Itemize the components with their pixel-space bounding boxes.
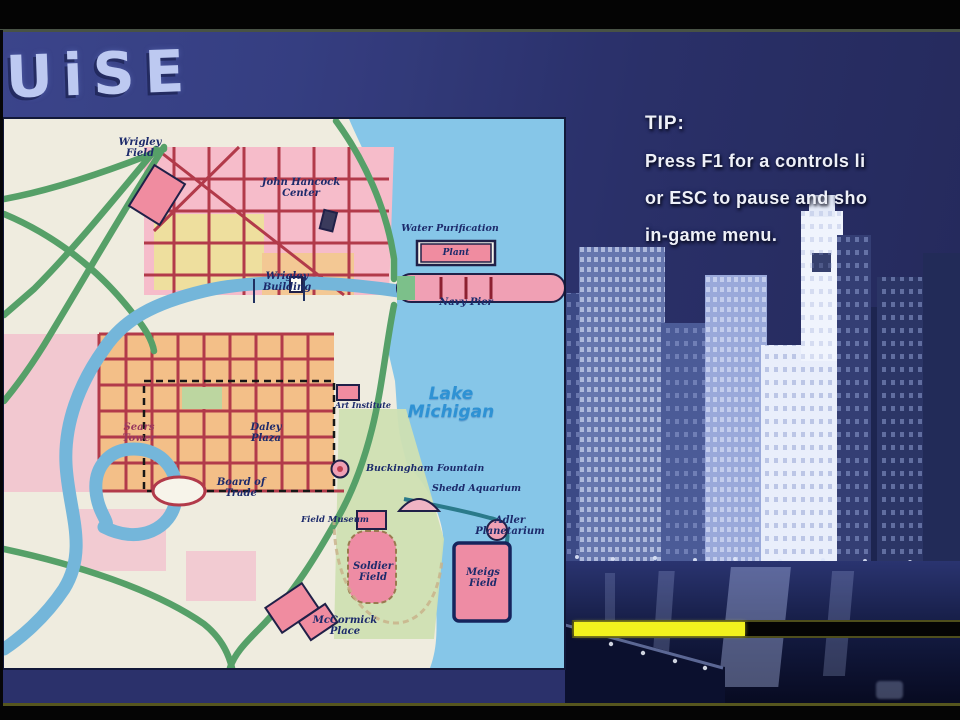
tip-line-1: Press F1 for a controls li <box>645 151 960 172</box>
tip-block: TIP: Press F1 for a controls li or ESC t… <box>645 113 960 246</box>
map-label-john-hancock: John Hancock Center <box>250 177 352 199</box>
top-frame-line <box>0 29 960 32</box>
map-label-mccormick-place: McCormick Place <box>296 615 394 637</box>
map-label-water-purification: Water Purification <box>380 223 520 234</box>
screen-title: UiSE <box>5 29 428 128</box>
map-label-wrigley-building: Wrigley Building <box>250 271 324 293</box>
map-label-daley-plaza: Daley Plaza <box>230 422 302 444</box>
map-label-meigs-field: Meigs Field <box>452 567 514 589</box>
chicago-map-panel: Wrigley Field John Hancock Center Water … <box>2 117 566 670</box>
map-label-buckingham-fountain: Buckingham Fountain <box>366 463 556 474</box>
map-label-navy-pier: Navy Pier <box>420 297 512 308</box>
map-label-shedd-aquarium: Shedd Aquarium <box>432 483 562 494</box>
tip-heading: TIP: <box>645 113 960 135</box>
bottom-letterbox-bar <box>0 706 960 720</box>
loading-progress-bar <box>572 620 960 638</box>
loading-screen: TIP: Press F1 for a controls li or ESC t… <box>0 0 960 720</box>
congress-interchange <box>153 477 205 505</box>
left-edge-strip <box>0 30 3 706</box>
tip-line-2: or ESC to pause and sho <box>645 188 960 209</box>
loading-progress-fill <box>574 622 745 636</box>
watermark-logo <box>876 681 903 699</box>
tip-line-3: in-game menu. <box>645 225 960 246</box>
art-institute-box <box>337 385 359 400</box>
navy-pier-root <box>397 276 415 300</box>
map-label-adler-planetarium: Adler Planetarium <box>456 515 564 537</box>
map-label-lake-michigan: Lake Michigan <box>396 385 506 421</box>
top-letterbox-bar <box>0 0 960 30</box>
map-label-sears-tower: Sears Tower <box>102 422 176 444</box>
map-label-art-institute: Art Institute <box>324 401 402 410</box>
map-label-wrigley-field: Wrigley Field <box>107 137 173 159</box>
map-label-plant: Plant <box>428 248 484 258</box>
map-label-soldier-field: Soldier Field <box>342 561 404 583</box>
map-label-field-museum: Field Museum <box>300 515 370 526</box>
map-label-board-of-trade: Board of Trade <box>200 477 282 499</box>
